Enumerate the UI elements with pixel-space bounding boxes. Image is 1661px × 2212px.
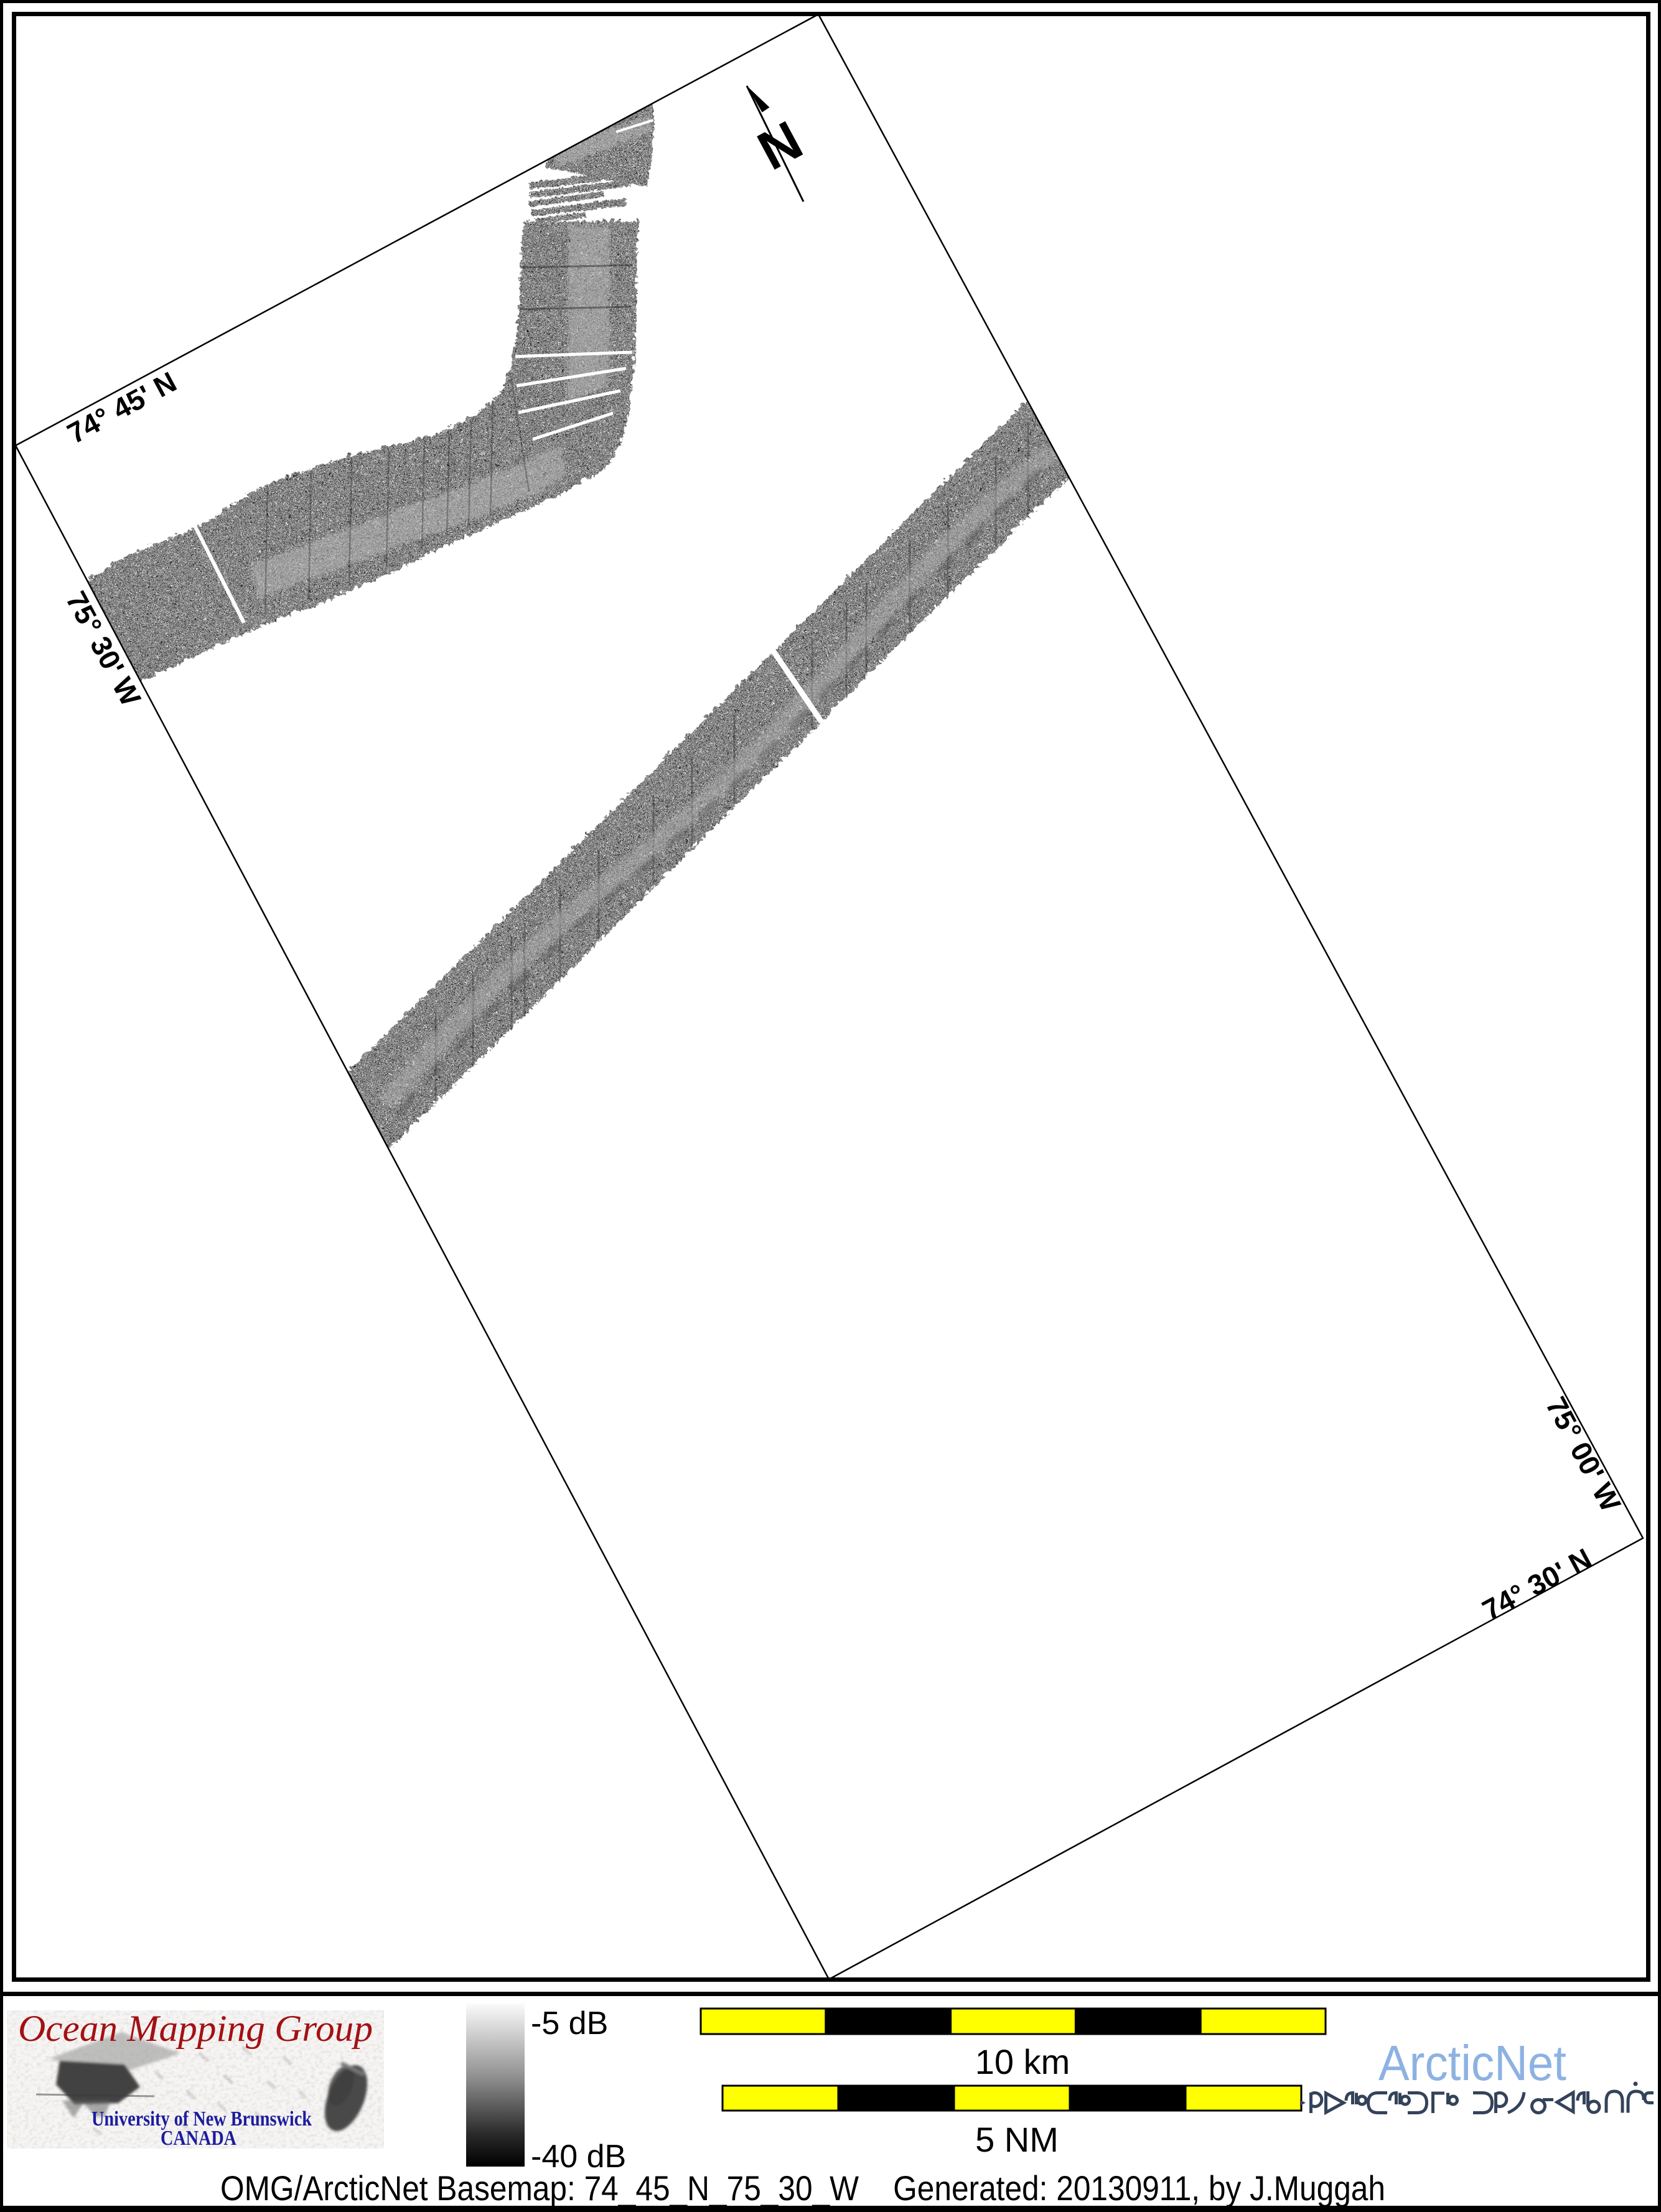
svg-text:OMG/ArcticNet Basemap: 74_45_N: OMG/ArcticNet Basemap: 74_45_N_75_30_W G… [220,2168,1385,2208]
svg-text:10 km: 10 km [975,2042,1070,2081]
svg-text:-5 dB: -5 dB [531,2005,608,2042]
svg-text:74° 45' N: 74° 45' N [62,365,181,450]
svg-text:74° 30' N: 74° 30' N [1477,1542,1596,1626]
svg-text:75° 00' W: 75° 00' W [1540,1391,1627,1517]
svg-text:CANADA: CANADA [161,2127,236,2150]
svg-text:ArcticNet: ArcticNet [1378,2035,1566,2091]
svg-text:N: N [748,109,812,182]
svg-text:5 NM: 5 NM [975,2120,1059,2159]
svg-text:Ocean Mapping Group: Ocean Mapping Group [18,2008,373,2049]
